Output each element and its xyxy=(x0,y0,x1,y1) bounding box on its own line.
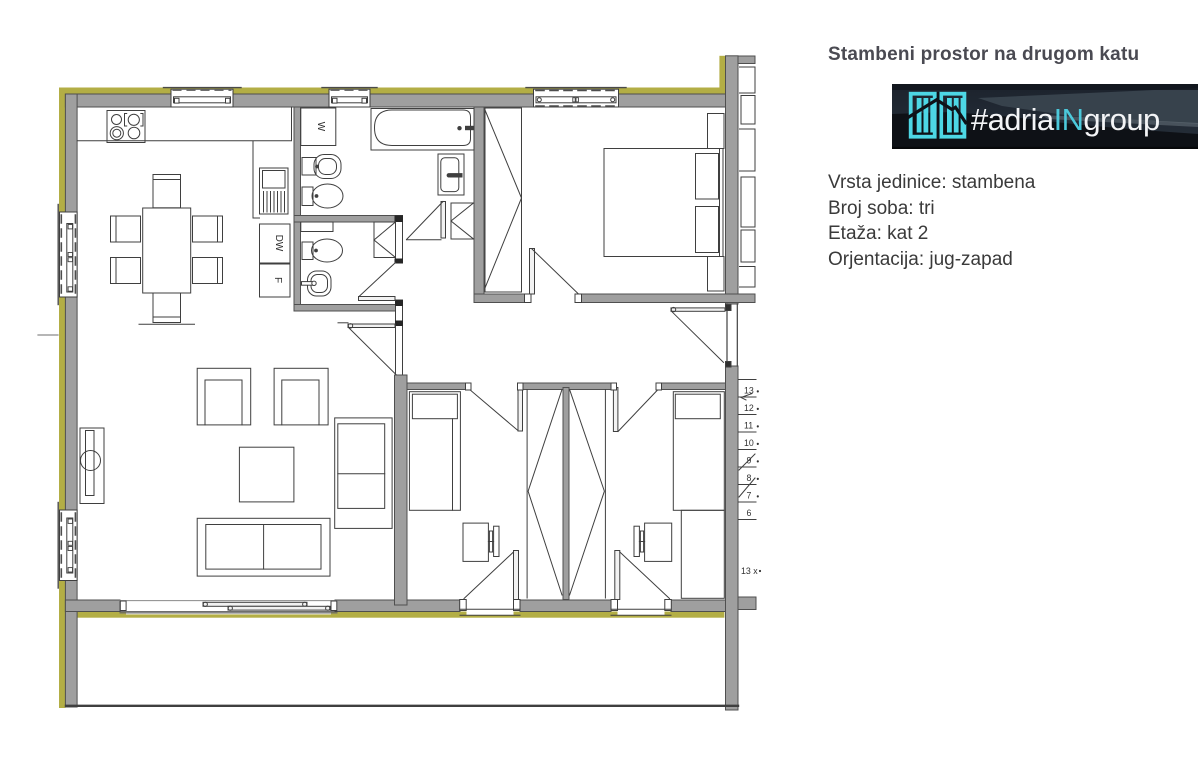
svg-text:9: 9 xyxy=(747,455,752,465)
svg-text:13: 13 xyxy=(744,385,754,395)
svg-text:8: 8 xyxy=(747,473,752,483)
svg-text:DW: DW xyxy=(273,235,284,252)
svg-text:12: 12 xyxy=(744,403,754,413)
svg-text:7: 7 xyxy=(747,490,752,500)
svg-text:11: 11 xyxy=(744,420,753,430)
svg-text:W: W xyxy=(315,122,326,132)
svg-text:F: F xyxy=(272,277,283,283)
svg-text:13 x: 13 x xyxy=(741,566,758,576)
svg-text:6: 6 xyxy=(747,508,752,518)
svg-text:10: 10 xyxy=(744,438,754,448)
